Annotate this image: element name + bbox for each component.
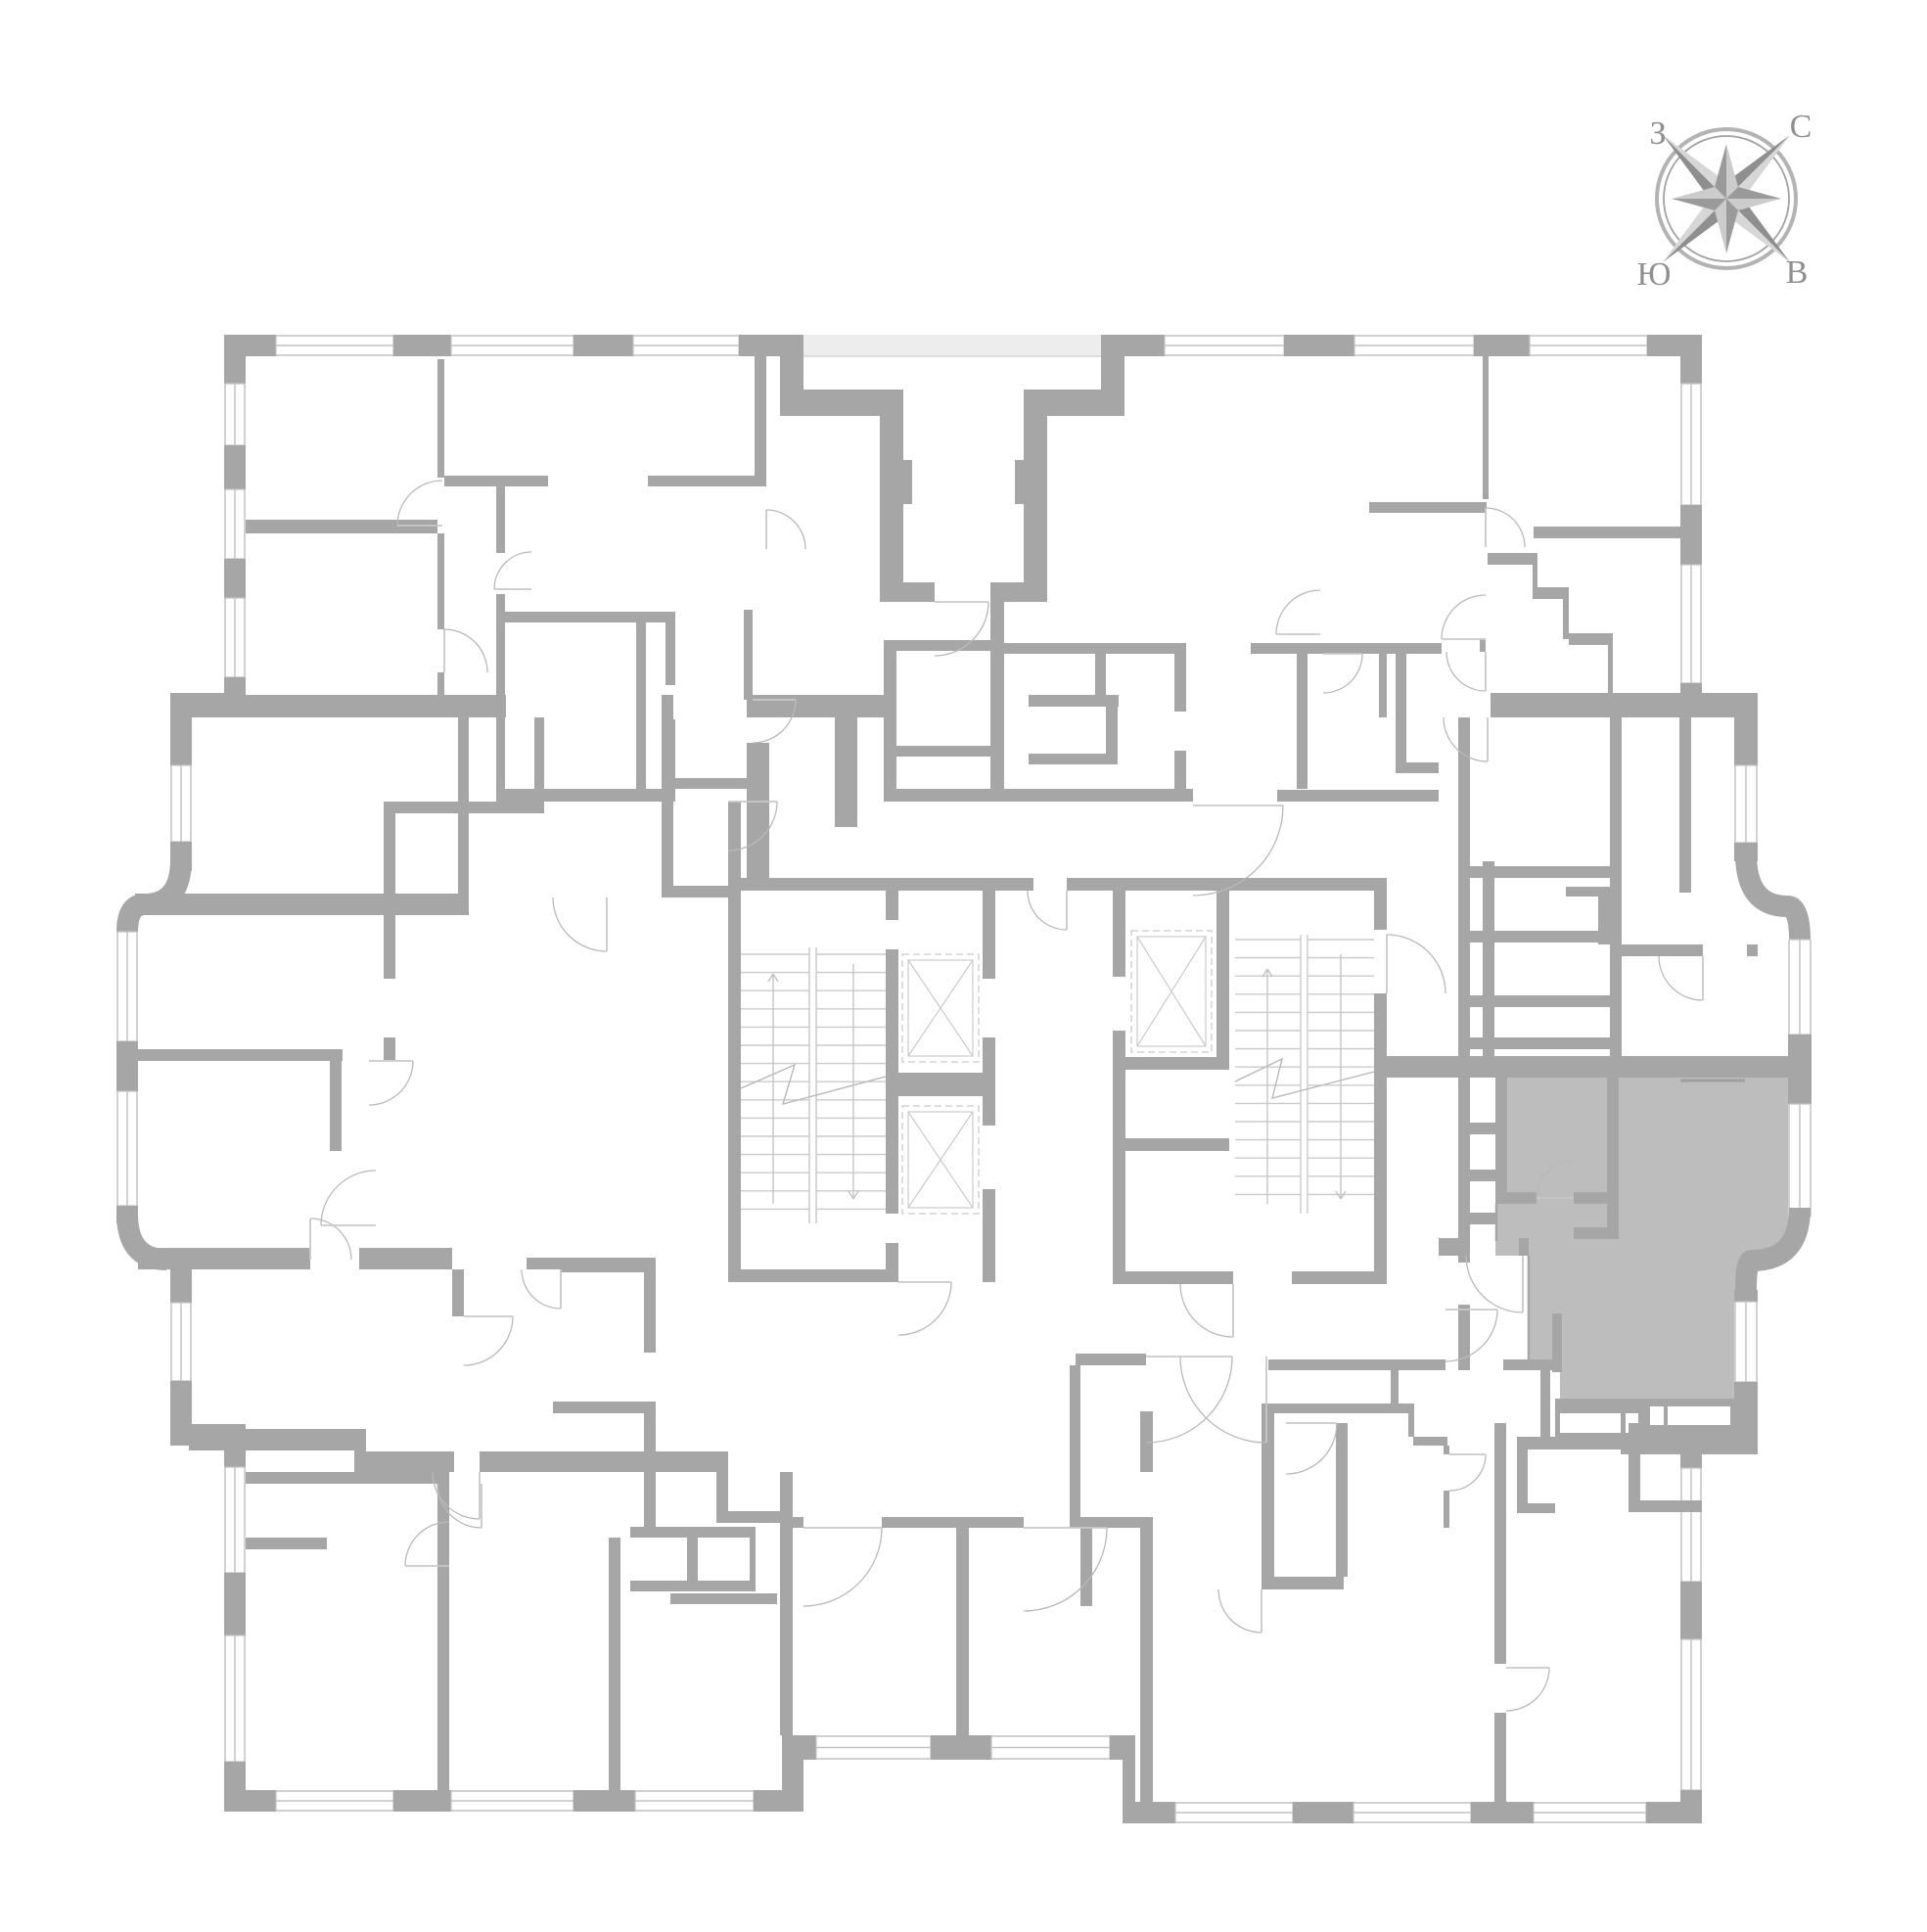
svg-text:Ю: Ю bbox=[1637, 256, 1672, 293]
svg-text:З: З bbox=[1649, 115, 1666, 152]
svg-text:В: В bbox=[1786, 254, 1809, 291]
svg-text:С: С bbox=[1790, 109, 1812, 145]
